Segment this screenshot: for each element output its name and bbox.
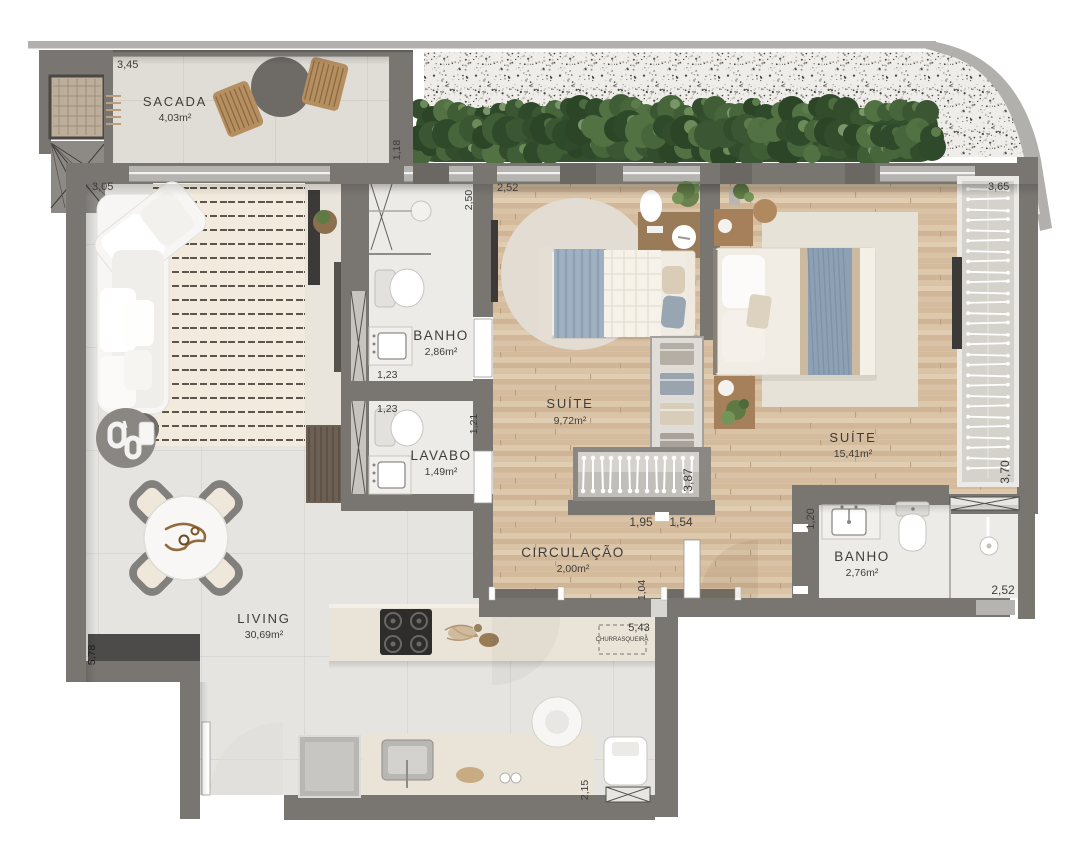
svg-text:1,20: 1,20 xyxy=(805,508,817,529)
svg-text:1,23: 1,23 xyxy=(377,403,398,415)
svg-text:9,72m²: 9,72m² xyxy=(554,415,587,427)
svg-text:CIRCULAÇÃO: CIRCULAÇÃO xyxy=(521,545,625,560)
svg-text:2,50: 2,50 xyxy=(463,190,475,211)
svg-text:1,54: 1,54 xyxy=(669,515,693,529)
svg-text:1,21: 1,21 xyxy=(468,414,480,435)
svg-text:LAVABO: LAVABO xyxy=(410,448,471,463)
svg-text:2,86m²: 2,86m² xyxy=(425,346,458,358)
svg-text:3,45: 3,45 xyxy=(117,59,138,71)
svg-text:SUÍTE: SUÍTE xyxy=(546,396,593,411)
svg-text:2,15: 2,15 xyxy=(579,780,591,801)
svg-text:2,52: 2,52 xyxy=(497,182,518,194)
svg-text:3,70: 3,70 xyxy=(998,460,1012,484)
svg-text:1,49m²: 1,49m² xyxy=(425,466,458,478)
svg-text:1,18: 1,18 xyxy=(391,140,403,161)
svg-text:2,52: 2,52 xyxy=(991,583,1015,597)
svg-text:5,78: 5,78 xyxy=(86,645,98,666)
svg-text:4,03m²: 4,03m² xyxy=(159,112,192,124)
svg-text:CHURRASQUEIRA: CHURRASQUEIRA xyxy=(596,637,649,643)
svg-text:BANHO: BANHO xyxy=(834,549,890,564)
svg-text:SACADA: SACADA xyxy=(143,94,207,109)
svg-text:1,04: 1,04 xyxy=(636,580,648,601)
svg-text:1,23: 1,23 xyxy=(377,369,398,381)
svg-text:2,76m²: 2,76m² xyxy=(846,567,879,579)
svg-text:30,69m²: 30,69m² xyxy=(245,629,284,641)
svg-text:3,05: 3,05 xyxy=(92,181,113,193)
svg-text:LIVING: LIVING xyxy=(237,611,290,626)
svg-text:SUÍTE: SUÍTE xyxy=(829,430,876,445)
svg-text:BANHO: BANHO xyxy=(413,328,469,343)
svg-text:5,43: 5,43 xyxy=(628,622,649,634)
svg-text:1,95: 1,95 xyxy=(629,515,653,529)
svg-text:15,41m²: 15,41m² xyxy=(834,448,873,460)
svg-text:3,65: 3,65 xyxy=(988,181,1009,193)
svg-text:3,87: 3,87 xyxy=(681,468,695,492)
svg-text:2,00m²: 2,00m² xyxy=(557,563,590,575)
